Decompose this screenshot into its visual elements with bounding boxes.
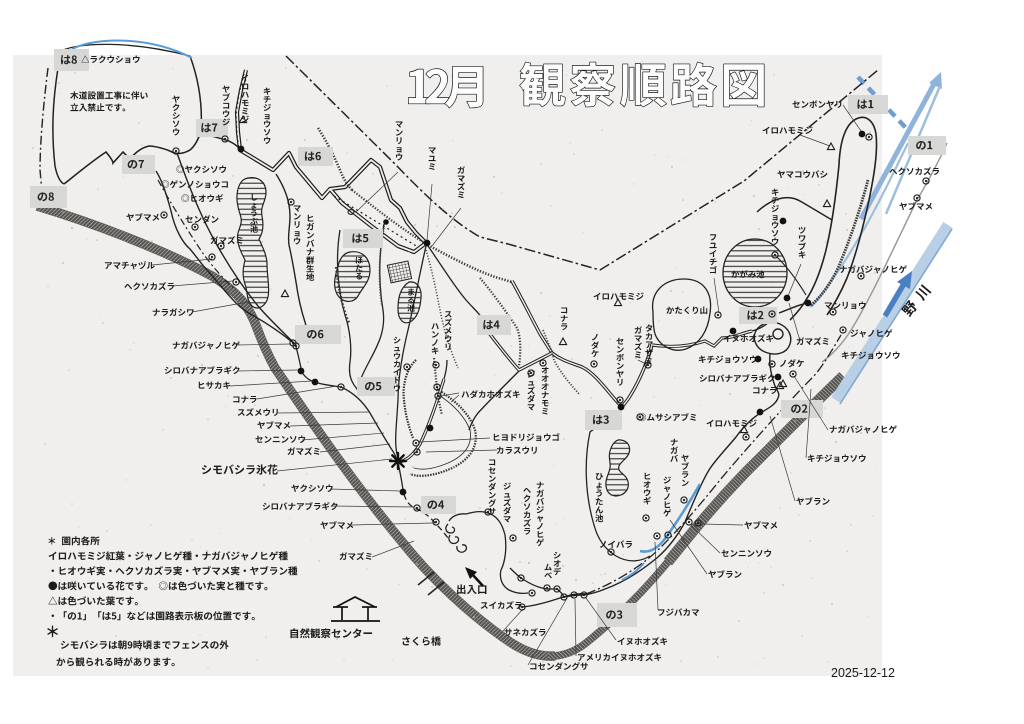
svg-text:2025-12-12: 2025-12-12 (831, 666, 895, 680)
